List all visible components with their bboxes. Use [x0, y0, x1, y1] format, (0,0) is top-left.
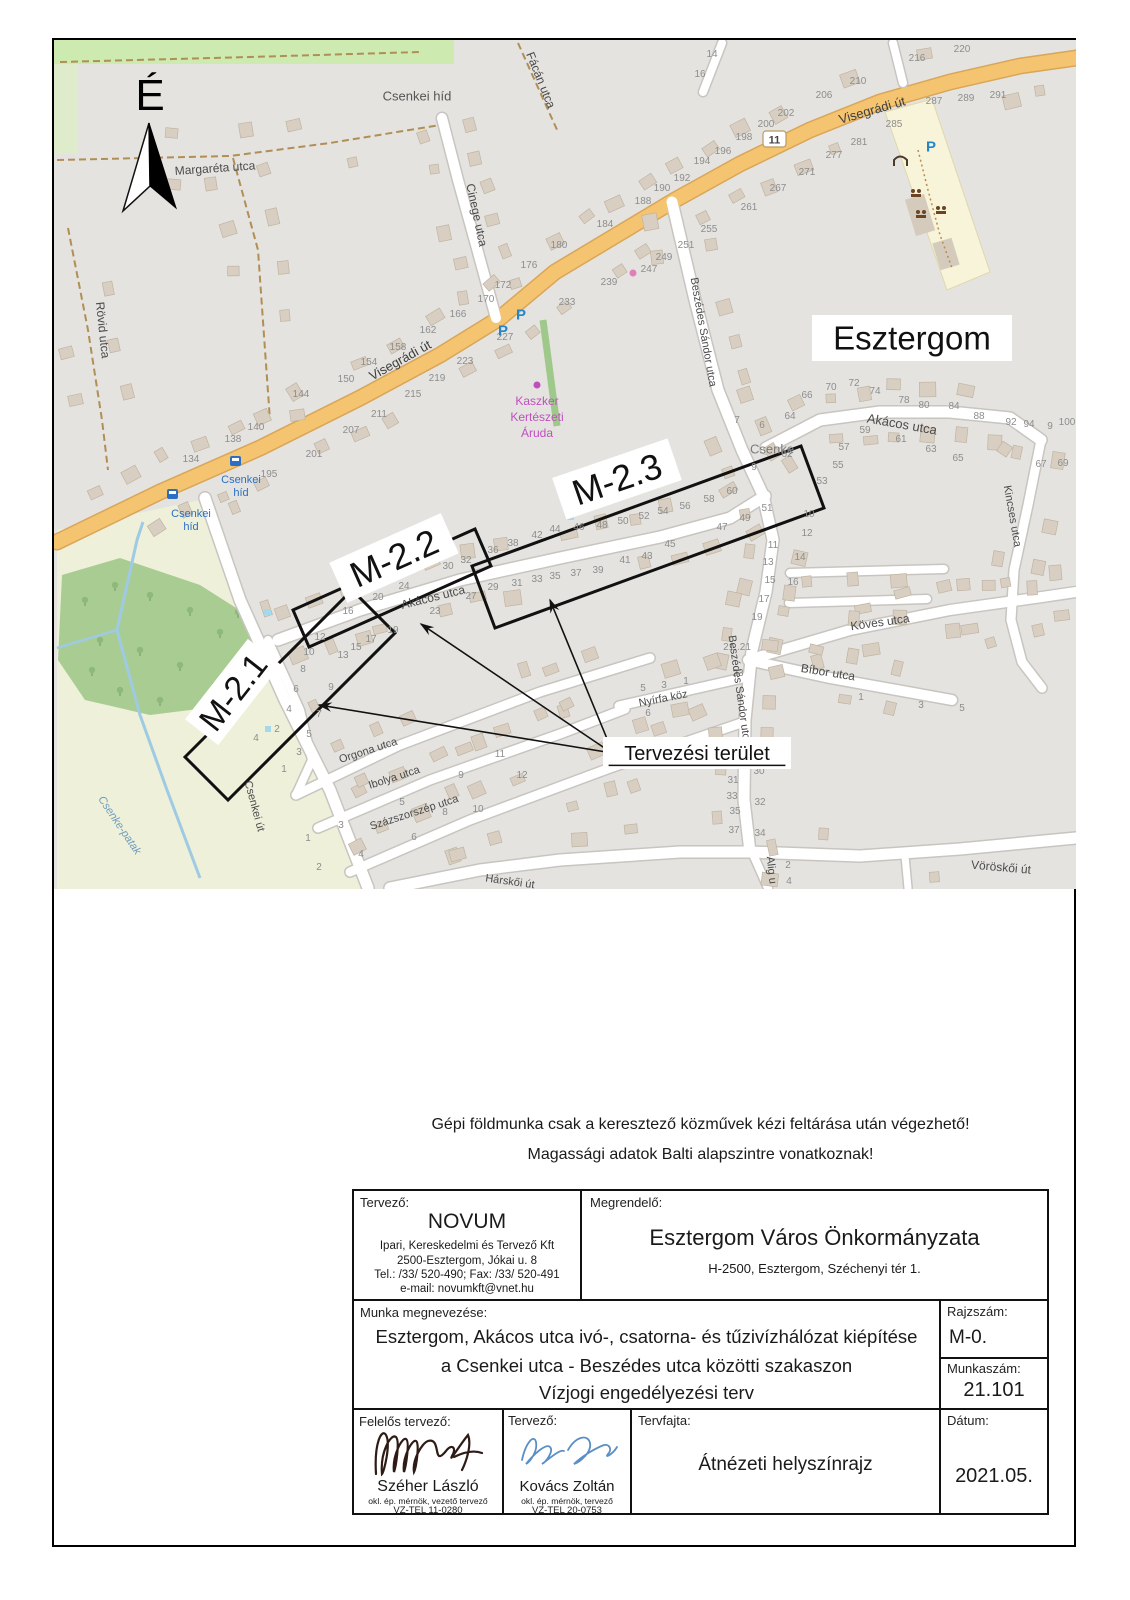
house-number: 43	[641, 551, 653, 562]
house-number: 287	[926, 96, 943, 107]
house-number: 80	[918, 400, 930, 411]
house-number: 4	[786, 876, 792, 887]
house-number: 56	[679, 501, 691, 512]
house-number: 54	[657, 506, 669, 517]
designer-cell: Tervező: NOVUM Ipari, Kereskedelmi és Te…	[354, 1191, 582, 1301]
house-number: 57	[838, 442, 850, 453]
house-number: 6	[411, 832, 417, 843]
house-number: 37	[728, 825, 740, 836]
house-number: 239	[601, 277, 618, 288]
house-number: 277	[826, 150, 843, 161]
house-number: 3	[661, 680, 667, 691]
svg-text:Csenke: Csenke	[750, 442, 794, 457]
house-number: 92	[1005, 417, 1017, 428]
route-shield-number: 11	[769, 135, 781, 147]
house-number: 34	[754, 828, 766, 839]
house-number: 170	[478, 294, 495, 305]
drawing-number-cell: Rajzszám: M-0.	[941, 1301, 1047, 1359]
svg-text:Csenkei híd: Csenkei híd	[383, 89, 452, 104]
house-number: 55	[832, 460, 844, 471]
svg-text:Tervezési terület: Tervezési terület	[624, 743, 770, 765]
house-number: 9	[751, 462, 757, 473]
work-name-cell: Munka megnevezése: Esztergom, Akácos utc…	[354, 1301, 941, 1410]
house-number: 78	[898, 395, 910, 406]
house-number: 49	[739, 513, 751, 524]
note-line-2: Magassági adatok Balti alapszintre vonat…	[352, 1146, 1049, 1164]
house-number: 249	[656, 252, 673, 263]
house-number: 281	[851, 137, 868, 148]
drawing-number-value: M-0.	[949, 1327, 987, 1349]
house-number: 207	[343, 425, 360, 436]
chief-designer-cell: Felelős tervező: Széher László okl. ép. …	[354, 1410, 504, 1513]
chief-designer-signature	[362, 1422, 497, 1480]
house-number: 17	[365, 634, 377, 645]
house-number: 32	[460, 555, 472, 566]
house-number: 58	[703, 494, 715, 505]
map-label: Csenkei híd	[383, 89, 452, 104]
house-number: 7	[316, 709, 322, 720]
plan-type-label: Tervfajta:	[638, 1413, 691, 1428]
house-number: 6	[759, 420, 765, 431]
house-number: 70	[825, 382, 837, 393]
client-cell: Megrendelő: Esztergom Város Önkormányzat…	[582, 1191, 1047, 1301]
house-number: 16	[342, 606, 354, 617]
designer-company: NOVUM	[354, 1210, 580, 1234]
house-number: 211	[371, 409, 387, 420]
house-number: 134	[183, 454, 200, 465]
house-number: 42	[531, 530, 543, 541]
house-number: 11	[768, 540, 779, 551]
house-number: 261	[741, 202, 758, 213]
house-number: 180	[551, 240, 568, 251]
map-label: híd	[183, 521, 198, 533]
map-label: P	[498, 322, 508, 339]
house-number: 16	[694, 69, 706, 80]
house-number: 219	[429, 373, 446, 384]
house-number: 13	[762, 557, 774, 568]
house-number: 46	[573, 522, 585, 533]
plan-sheet: { "page": { "north_symbol": "É", "note_l…	[0, 0, 1130, 1600]
house-number: 162	[420, 325, 437, 336]
house-number: 9	[1047, 421, 1053, 432]
house-number: 2	[785, 860, 791, 871]
house-number: 45	[664, 539, 676, 550]
house-number: 255	[701, 224, 718, 235]
house-number: 1	[281, 764, 287, 775]
house-number: 1	[858, 692, 864, 703]
house-number: 38	[507, 538, 519, 549]
house-number: 233	[559, 297, 576, 308]
house-number: 215	[405, 389, 422, 400]
house-number: 3	[296, 747, 302, 758]
house-number: 19	[751, 612, 763, 623]
job-number-cell: Munkaszám: 21.101	[941, 1359, 1047, 1410]
house-number: 32	[754, 797, 766, 808]
house-number: 61	[895, 434, 907, 445]
house-number: 88	[973, 411, 985, 422]
house-number: 67	[1035, 459, 1047, 470]
house-number: 15	[350, 642, 362, 653]
house-number: 4	[286, 704, 292, 715]
house-number: 210	[850, 76, 867, 87]
house-number: 12	[801, 528, 813, 539]
house-number: 144	[293, 389, 310, 400]
house-number: 20	[372, 592, 384, 603]
designer-label: Tervező:	[360, 1195, 409, 1210]
house-number: 12	[314, 632, 326, 643]
svg-text:P: P	[926, 138, 936, 155]
map-label: P	[516, 306, 526, 323]
designer2-signature	[512, 1426, 624, 1472]
house-number: 202	[778, 108, 795, 119]
client-address: H-2500, Esztergom, Széchenyi tér 1.	[582, 1261, 1047, 1276]
house-number: 9	[458, 770, 464, 781]
house-number: 166	[450, 309, 467, 320]
house-number: 14	[706, 49, 718, 60]
drawing-number-label: Rajzszám:	[947, 1304, 1008, 1319]
house-number: 74	[869, 386, 881, 397]
house-number: 188	[635, 196, 652, 207]
house-number: 150	[338, 374, 355, 385]
house-number: 291	[990, 90, 1007, 101]
date-label: Dátum:	[947, 1413, 989, 1428]
house-number: 51	[761, 503, 773, 514]
svg-text:híd: híd	[233, 487, 248, 499]
house-number: 37	[570, 568, 582, 579]
work-name-line1: Esztergom, Akácos utca ivó-, csatorna- é…	[354, 1326, 939, 1348]
house-number: 251	[678, 240, 695, 251]
house-number: 2	[274, 724, 280, 735]
map-label: Kertészeti	[510, 410, 563, 424]
house-number: 172	[495, 280, 512, 291]
house-number: 190	[654, 183, 671, 194]
route-shield: 11	[763, 131, 786, 147]
client-label: Megrendelő:	[590, 1195, 662, 1210]
house-number: 247	[641, 264, 658, 275]
house-number: 12	[516, 770, 528, 781]
map-label: Kaszker	[515, 394, 558, 408]
house-number: 10	[303, 647, 315, 658]
house-number: 2	[316, 862, 322, 873]
house-number: 267	[770, 183, 787, 194]
house-number: 220	[954, 44, 971, 55]
house-number: 10	[803, 509, 815, 520]
svg-text:É: É	[135, 71, 164, 120]
map-label: Csenkei	[171, 508, 211, 520]
map-label: P	[926, 138, 936, 155]
house-number: 64	[784, 411, 796, 422]
house-number: 41	[619, 555, 631, 566]
house-number: 48	[596, 520, 608, 531]
house-number: 100	[1059, 417, 1076, 428]
designer2-cell: Tervező: Kovács Zoltán okl. ép. mérnök, …	[504, 1410, 632, 1513]
designer-phone: Tel.: /33/ 520-490; Fax: /33/ 520-491	[354, 1269, 580, 1281]
house-number: 285	[886, 119, 903, 130]
house-number: 1	[305, 833, 311, 844]
house-number: 4	[253, 733, 259, 744]
house-number: 52	[638, 511, 650, 522]
house-number: 30	[442, 561, 454, 572]
house-number: 33	[726, 791, 738, 802]
house-number: 206	[816, 90, 833, 101]
designer2-name: Kovács Zoltán	[504, 1478, 630, 1495]
house-number: 198	[736, 132, 753, 143]
house-number: 216	[909, 53, 926, 64]
house-number: 31	[727, 775, 739, 786]
client-name: Esztergom Város Önkormányzata	[582, 1225, 1047, 1251]
map-label: híd	[233, 487, 248, 499]
plan-type-cell: Tervfajta: Átnézeti helyszínrajz	[632, 1410, 941, 1513]
house-number: 223	[457, 356, 474, 367]
house-number: 140	[248, 422, 265, 433]
note-line-1: Gépi földmunka csak a keresztező közműve…	[352, 1116, 1049, 1134]
house-number: 196	[715, 146, 732, 157]
house-number: 8	[300, 664, 306, 675]
house-number: 35	[729, 806, 741, 817]
house-number: 5	[399, 797, 405, 808]
shop-dot-icon	[630, 270, 637, 277]
house-number: 19	[387, 625, 399, 636]
designer-address: 2500-Esztergom, Jókai u. 8	[354, 1255, 580, 1267]
house-number: 7	[734, 415, 740, 426]
chief-designer-licence: VZ-TEL 11-0280	[354, 1505, 502, 1516]
house-number: 35	[549, 571, 561, 582]
house-number: 5	[959, 703, 965, 714]
house-number: 138	[225, 434, 242, 445]
svg-text:Csenkei: Csenkei	[221, 474, 261, 486]
work-name-line2: a Csenkei utca - Beszédes utca közötti s…	[354, 1355, 939, 1377]
house-number: 31	[511, 578, 523, 589]
house-number: 200	[758, 119, 775, 130]
house-number: 10	[472, 804, 484, 815]
house-number: 195	[261, 469, 278, 480]
chief-designer-name: Széher László	[354, 1478, 502, 1496]
house-number: 59	[859, 425, 871, 436]
svg-text:P: P	[516, 306, 526, 323]
house-number: 72	[848, 378, 860, 389]
house-number: 194	[694, 156, 711, 167]
house-number: 39	[592, 565, 604, 576]
map-boxed-label: Tervezési terület	[603, 737, 791, 769]
house-number: 24	[398, 581, 410, 592]
house-number: 1	[683, 676, 689, 687]
house-number: 36	[487, 545, 499, 556]
house-number: 6	[645, 708, 651, 719]
house-number: 9	[328, 682, 334, 693]
date-value: 2021.05.	[941, 1465, 1047, 1488]
house-number: 69	[1057, 458, 1069, 469]
house-number: 271	[799, 167, 816, 178]
house-number: 29	[487, 582, 499, 593]
job-number-value: 21.101	[941, 1379, 1047, 1402]
plan-type-value: Átnézeti helyszínrajz	[632, 1454, 939, 1476]
map-label: Csenkei	[221, 474, 261, 486]
house-number: 15	[764, 575, 776, 586]
svg-text:Esztergom: Esztergom	[833, 320, 991, 357]
garden-centre-dot-icon	[534, 382, 541, 389]
svg-text:P: P	[498, 322, 508, 339]
date-cell: Dátum: 2021.05.	[941, 1410, 1047, 1513]
svg-text:Csenkei: Csenkei	[171, 508, 211, 520]
map-label: Csenke	[750, 442, 794, 457]
house-number: 27	[465, 591, 477, 602]
map-boxed-label: Esztergom	[812, 315, 1012, 361]
svg-text:Áruda: Áruda	[521, 425, 553, 440]
house-number: 5	[640, 683, 646, 694]
title-block: Tervező: NOVUM Ipari, Kereskedelmi és Te…	[352, 1189, 1049, 1515]
house-number: 33	[531, 574, 543, 585]
designer2-licence: VZ-TEL 20-0753	[504, 1505, 630, 1516]
svg-text:Kaszker: Kaszker	[515, 394, 558, 408]
house-number: 14	[794, 552, 806, 563]
svg-text:Kertészeti: Kertészeti	[510, 410, 563, 424]
house-number: 65	[952, 453, 964, 464]
house-number: 184	[597, 219, 614, 230]
house-number: 53	[816, 476, 828, 487]
designer-email: e-mail: novumkft@vnet.hu	[354, 1283, 580, 1295]
house-number: 60	[726, 486, 738, 497]
house-number: 44	[549, 524, 561, 535]
house-number: 66	[801, 390, 813, 401]
job-number-label: Munkaszám:	[947, 1361, 1021, 1376]
house-number: 5	[306, 729, 312, 740]
house-number: 47	[716, 522, 728, 533]
house-number: 50	[617, 516, 629, 527]
house-number: 84	[948, 401, 960, 412]
work-name-line3: Vízjogi engedélyezési terv	[354, 1382, 939, 1404]
house-number: 3	[338, 820, 344, 831]
designer-company-line: Ipari, Kereskedelmi és Tervező Kft	[354, 1240, 580, 1252]
house-number: 16	[787, 577, 799, 588]
house-number: 176	[521, 260, 538, 271]
site-map: 11 2162202102062022001981961941921901881…	[54, 40, 1076, 889]
house-number: 63	[925, 444, 937, 455]
house-number: 3	[918, 700, 924, 711]
svg-text:híd: híd	[183, 521, 198, 533]
map-label: Áruda	[521, 425, 553, 440]
house-number: 201	[306, 449, 323, 460]
house-number: 192	[674, 173, 691, 184]
house-number: 4	[358, 849, 364, 860]
house-number: 289	[958, 93, 975, 104]
house-number: 94	[1023, 419, 1035, 430]
house-number: 13	[337, 650, 349, 661]
house-number: 11	[495, 749, 506, 760]
work-name-label: Munka megnevezése:	[360, 1305, 487, 1320]
house-number: 23	[429, 606, 441, 617]
house-number: 6	[293, 684, 299, 695]
house-number: 17	[758, 594, 770, 605]
